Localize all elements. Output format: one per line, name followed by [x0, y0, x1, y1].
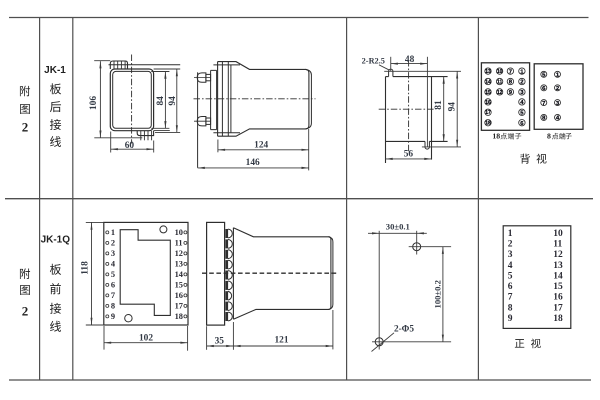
svg-text:35: 35 — [215, 337, 225, 347]
svg-text:3: 3 — [556, 101, 560, 107]
svg-text:48: 48 — [405, 55, 415, 65]
svg-text:5: 5 — [508, 271, 513, 281]
svg-text:102: 102 — [139, 334, 153, 344]
svg-text:16: 16 — [175, 291, 183, 300]
svg-text:2-R2.5: 2-R2.5 — [362, 56, 385, 65]
svg-text:124: 124 — [254, 141, 268, 151]
svg-text:1: 1 — [111, 228, 115, 237]
svg-text:94: 94 — [168, 96, 178, 106]
svg-text:16: 16 — [485, 100, 491, 106]
svg-text:84: 84 — [156, 96, 166, 106]
svg-text:2-Φ5: 2-Φ5 — [394, 325, 414, 335]
svg-text:10: 10 — [175, 228, 183, 237]
svg-text:5: 5 — [520, 111, 524, 117]
svg-text:56: 56 — [404, 149, 414, 159]
svg-text:12: 12 — [175, 249, 183, 258]
svg-text:7: 7 — [111, 291, 115, 300]
svg-text:94: 94 — [448, 102, 458, 112]
svg-text:2: 2 — [508, 239, 513, 249]
svg-text:121: 121 — [274, 335, 288, 345]
svg-text:118: 118 — [81, 261, 91, 275]
svg-text:2: 2 — [22, 119, 29, 134]
svg-text:9: 9 — [508, 314, 513, 324]
svg-text:8: 8 — [542, 116, 546, 122]
svg-text:7: 7 — [508, 293, 513, 303]
svg-text:8: 8 — [508, 303, 513, 313]
svg-text:2: 2 — [111, 239, 115, 248]
svg-text:100±0.2: 100±0.2 — [432, 280, 442, 308]
svg-text:8: 8 — [509, 80, 513, 86]
svg-text:5: 5 — [542, 73, 546, 79]
svg-text:60: 60 — [125, 141, 135, 151]
svg-text:1: 1 — [508, 229, 513, 239]
svg-text:16: 16 — [553, 293, 563, 303]
svg-text:15: 15 — [175, 281, 183, 290]
svg-text:13: 13 — [485, 69, 491, 75]
svg-text:18: 18 — [175, 312, 183, 321]
svg-text:6: 6 — [542, 86, 546, 92]
svg-text:2: 2 — [520, 80, 524, 86]
svg-text:6: 6 — [508, 282, 513, 292]
svg-text:4: 4 — [508, 261, 513, 271]
svg-text:13: 13 — [175, 260, 183, 269]
svg-text:18: 18 — [492, 132, 500, 141]
svg-text:10: 10 — [497, 69, 503, 75]
svg-text:11: 11 — [175, 239, 183, 248]
svg-text:14: 14 — [485, 79, 491, 85]
svg-text:7: 7 — [509, 69, 513, 75]
svg-text:10: 10 — [553, 229, 563, 239]
svg-text:11: 11 — [553, 239, 562, 249]
svg-text:JK-1: JK-1 — [44, 65, 66, 76]
svg-text:11: 11 — [497, 79, 503, 85]
svg-text:14: 14 — [175, 270, 184, 279]
svg-text:14: 14 — [553, 271, 563, 281]
svg-text:81: 81 — [434, 100, 444, 110]
svg-text:12: 12 — [553, 250, 563, 260]
svg-text:13: 13 — [553, 261, 563, 271]
svg-text:4: 4 — [520, 100, 524, 106]
svg-text:17: 17 — [553, 303, 563, 313]
svg-text:15: 15 — [553, 282, 563, 292]
svg-text:8: 8 — [547, 132, 551, 141]
svg-text:18: 18 — [553, 314, 563, 324]
svg-text:1: 1 — [520, 69, 524, 75]
svg-text:7: 7 — [542, 101, 546, 107]
svg-text:JK-1Q: JK-1Q — [41, 234, 71, 245]
svg-text:17: 17 — [175, 302, 183, 311]
svg-text:17: 17 — [485, 110, 491, 116]
svg-text:106: 106 — [89, 96, 99, 110]
svg-text:2: 2 — [22, 303, 29, 318]
svg-text:3: 3 — [508, 250, 513, 260]
svg-text:1: 1 — [556, 73, 560, 79]
svg-text:2: 2 — [556, 86, 560, 92]
svg-text:8: 8 — [111, 302, 115, 311]
svg-text:18: 18 — [485, 121, 491, 127]
svg-text:6: 6 — [111, 281, 115, 290]
svg-text:3: 3 — [111, 249, 115, 258]
svg-text:6: 6 — [520, 121, 524, 127]
svg-text:4: 4 — [556, 116, 560, 122]
svg-text:15: 15 — [485, 90, 491, 96]
svg-text:9: 9 — [509, 90, 513, 96]
svg-text:4: 4 — [111, 260, 116, 269]
svg-text:5: 5 — [111, 270, 115, 279]
svg-text:3: 3 — [520, 90, 524, 96]
svg-text:9: 9 — [111, 312, 115, 321]
svg-text:12: 12 — [497, 90, 503, 96]
svg-text:146: 146 — [246, 158, 260, 168]
svg-text:30±0.1: 30±0.1 — [386, 221, 410, 231]
